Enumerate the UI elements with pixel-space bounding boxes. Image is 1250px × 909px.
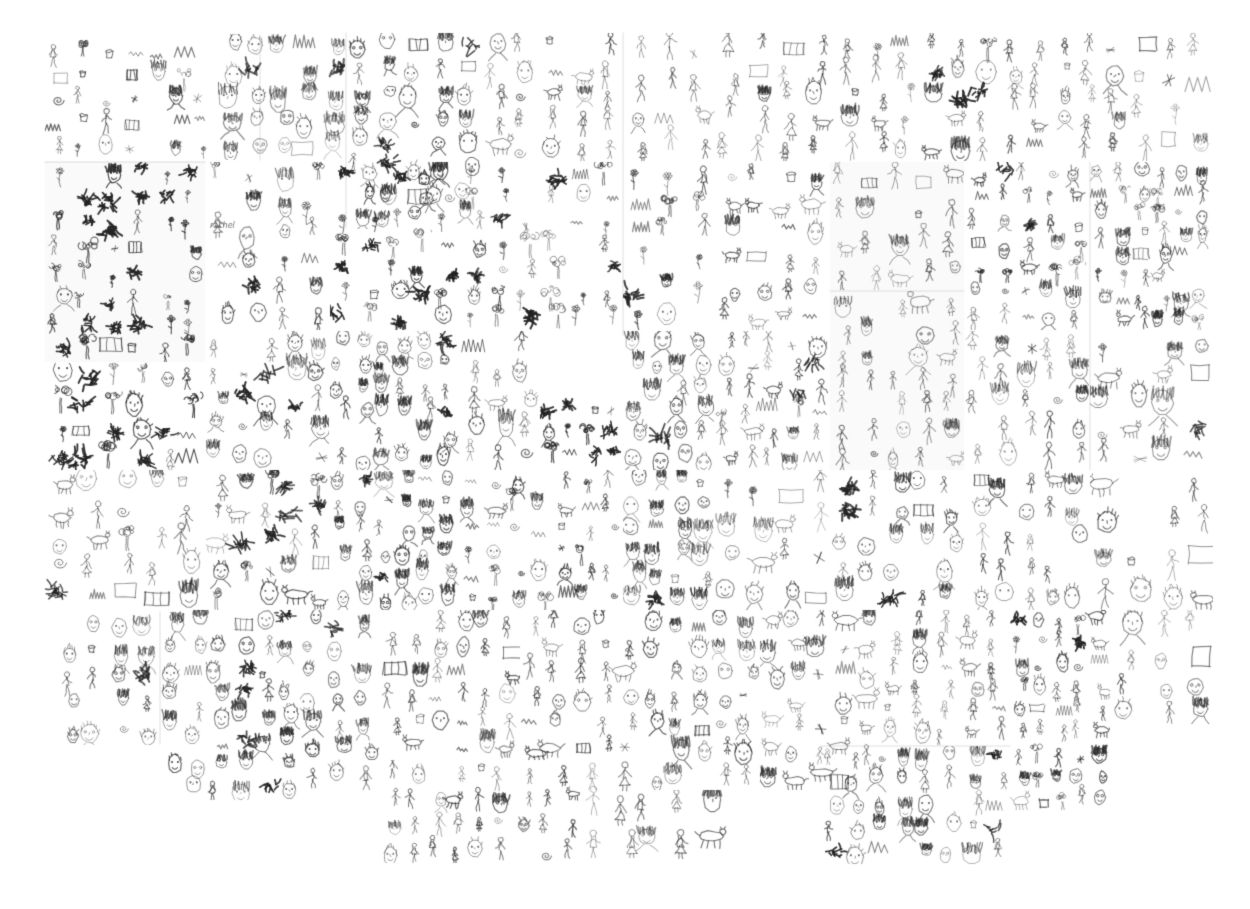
sketch-collage-canvas — [0, 0, 1250, 909]
sketch-collage-page: Large collage of small hand-drawn pencil… — [0, 0, 1250, 909]
